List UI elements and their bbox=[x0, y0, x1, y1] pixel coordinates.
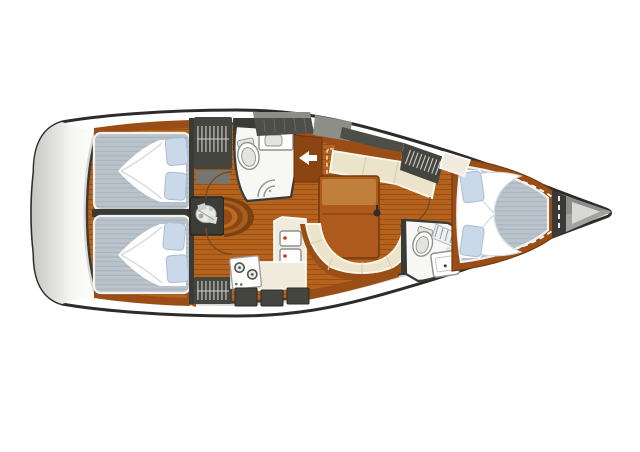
galley-sink-icon bbox=[280, 231, 301, 246]
faucet-dot bbox=[283, 254, 287, 258]
pillow bbox=[460, 225, 485, 258]
aft-head bbox=[234, 126, 297, 201]
sink-basin bbox=[265, 135, 282, 146]
floorplan-svg bbox=[0, 0, 640, 452]
bow bbox=[552, 190, 611, 238]
pillow bbox=[165, 137, 188, 166]
storage-lockers-bottom bbox=[235, 288, 309, 306]
pillow bbox=[163, 222, 186, 251]
head-partition bbox=[401, 219, 405, 275]
floorplan-page bbox=[0, 0, 640, 452]
salon-table-leaf bbox=[322, 179, 376, 205]
pillow bbox=[166, 255, 189, 283]
hanging-locker-aft-bottom bbox=[194, 277, 232, 304]
aft-cabin-port bbox=[94, 120, 190, 210]
pillow bbox=[164, 172, 187, 200]
locker-door bbox=[287, 288, 309, 304]
faucet-dot bbox=[283, 236, 287, 240]
shower-drain bbox=[269, 190, 271, 192]
stove-icon bbox=[230, 256, 262, 290]
locker-door bbox=[261, 290, 283, 306]
locker-shelf bbox=[196, 170, 230, 184]
aft-cabin-starboard bbox=[94, 216, 190, 306]
sliding-hatch-edge bbox=[253, 112, 311, 118]
locker-door bbox=[235, 288, 257, 306]
forward-cabin-v-berth bbox=[440, 152, 558, 271]
